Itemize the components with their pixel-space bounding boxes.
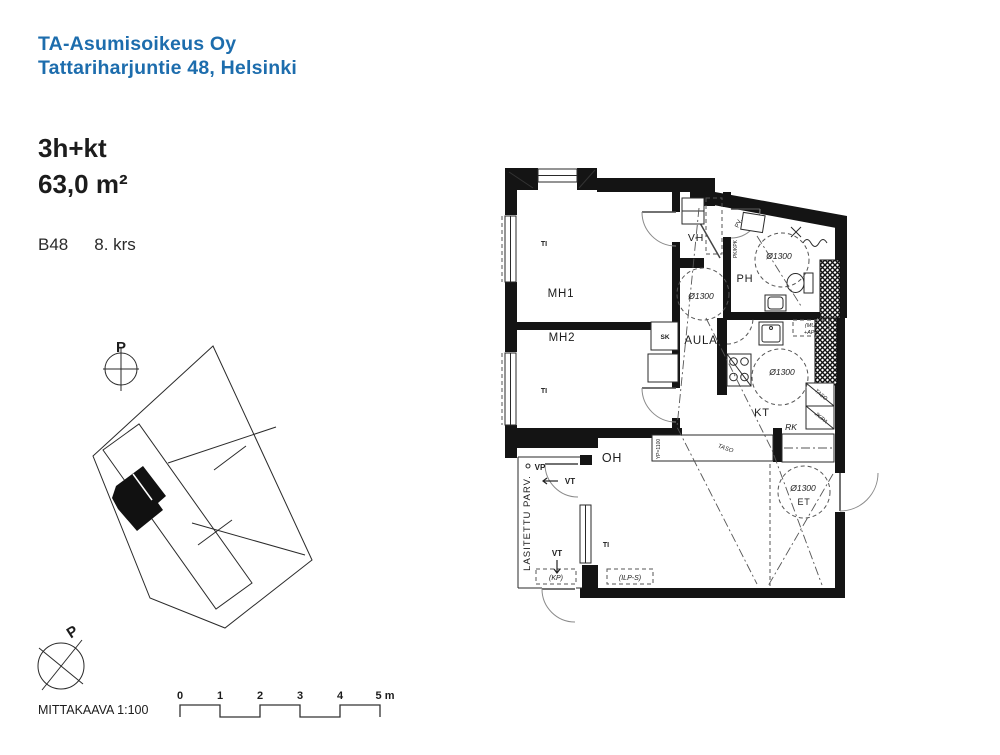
turning-circle-label: Ø1300 [765, 251, 792, 261]
highlighted-apartment [112, 466, 166, 531]
north-arrow-top: P [103, 339, 139, 391]
window-top [538, 169, 577, 182]
shaft-hatch [815, 318, 837, 385]
building-line [214, 446, 246, 470]
scale-label: MITTAKAAVA 1:100 [38, 703, 149, 717]
door-mh2 [642, 388, 676, 422]
north-label: P [64, 622, 82, 642]
sk-label: SK [660, 334, 669, 341]
apartment-area: 63,0 m² [38, 166, 128, 202]
turning-circle-label: Ø1300 [789, 483, 816, 493]
rk-label: RK [785, 422, 797, 432]
site-plan [93, 346, 312, 628]
ilps-label: (ILP-S) [619, 575, 641, 582]
door-entrance [840, 473, 878, 511]
stove [727, 354, 751, 386]
building-line [168, 427, 276, 463]
turning-circle-label: Ø1300 [687, 291, 714, 301]
ph-sink [765, 295, 786, 311]
scale-tick-end: 5 m [376, 690, 395, 702]
apartment-id: B48 [38, 235, 68, 254]
building-line [192, 523, 305, 555]
compass-line [39, 648, 83, 684]
window-oh [580, 505, 591, 563]
vh-cabinet [682, 198, 704, 224]
corner-cabinet [727, 318, 753, 344]
room-label-mh1: MH1 [548, 288, 575, 300]
shafts [815, 260, 840, 385]
company-name: TA-Asumisoikeus Oy [38, 32, 297, 56]
window-mh1 [502, 216, 516, 282]
room-label-vh: VH [688, 232, 704, 244]
scale-bar: MITTAKAAVA 1:100 0 1 2 3 4 5 m [38, 690, 395, 717]
north-arrow-bottom: P [38, 622, 84, 690]
window-mh2 [502, 353, 516, 425]
page: { "header": { "company": "TA-Asumisoikeu… [0, 0, 1000, 750]
room-label-oh: OH [602, 451, 622, 465]
kp-label: (KP) [549, 575, 563, 582]
floor-number: 8. krs [94, 235, 136, 254]
room-label-ph: PH [737, 273, 754, 285]
vp-label: VP [535, 463, 546, 472]
windows [502, 169, 591, 563]
scale-tick: 2 [257, 690, 263, 702]
vent-arrows [543, 478, 560, 573]
apartment-summary: 3h+kt 63,0 m² [38, 130, 128, 202]
vt-label: VT [565, 477, 575, 486]
window-label: TI [541, 241, 547, 248]
unit-line: B488. krs [38, 235, 136, 255]
door-balcony-exterior [542, 589, 575, 622]
street-address: Tattariharjuntie 48, Helsinki [38, 56, 297, 80]
project-header: TA-Asumisoikeus Oy Tattariharjuntie 48, … [38, 32, 297, 80]
washer-reservation-label: PK/KPK [733, 239, 739, 258]
kitchen-counter [652, 435, 773, 461]
window-label: TI [603, 542, 609, 549]
vh-wardrobe [706, 198, 722, 254]
rk-cabinet [782, 434, 834, 462]
scale-tick: 1 [217, 690, 223, 702]
vp-marker [526, 464, 530, 468]
vt-label: VT [552, 549, 562, 558]
washing-machine [741, 212, 765, 232]
dishwasher-label: +APK [804, 330, 819, 336]
scale-tick: 0 [177, 690, 183, 702]
room-label-et: ET [797, 497, 810, 507]
door-mh1 [642, 212, 676, 246]
turning-circle-label: Ø1300 [768, 367, 795, 377]
room-label-kt: KT [754, 407, 770, 419]
window-label: TI [541, 388, 547, 395]
shaft-hatch [820, 260, 840, 318]
kitchen-sink [759, 322, 783, 345]
microwave-label: (MU) [805, 323, 817, 329]
scale-tick: 4 [337, 690, 344, 702]
apartment-type: 3h+kt [38, 130, 128, 166]
shower-curtain [803, 240, 827, 247]
scale-tick: 3 [297, 690, 303, 702]
counter-height-label: YP=1100 [656, 439, 662, 460]
turning-circle-kt [752, 349, 808, 405]
scale-bar-line [180, 705, 380, 717]
room-label-aula: AULA [684, 335, 717, 347]
north-label: P [116, 339, 126, 356]
balcony-label: LASITETTU PARV. [522, 475, 533, 571]
room-label-mh2: MH2 [549, 332, 576, 344]
floor-drain [791, 227, 801, 237]
drawing-canvas: P P MITTAKAAVA 1:100 0 1 2 3 4 5 m [0, 0, 1000, 750]
floor-plan: MH1 MH2 VH PH AULA KT OH ET TI TI TI SK … [502, 168, 878, 622]
